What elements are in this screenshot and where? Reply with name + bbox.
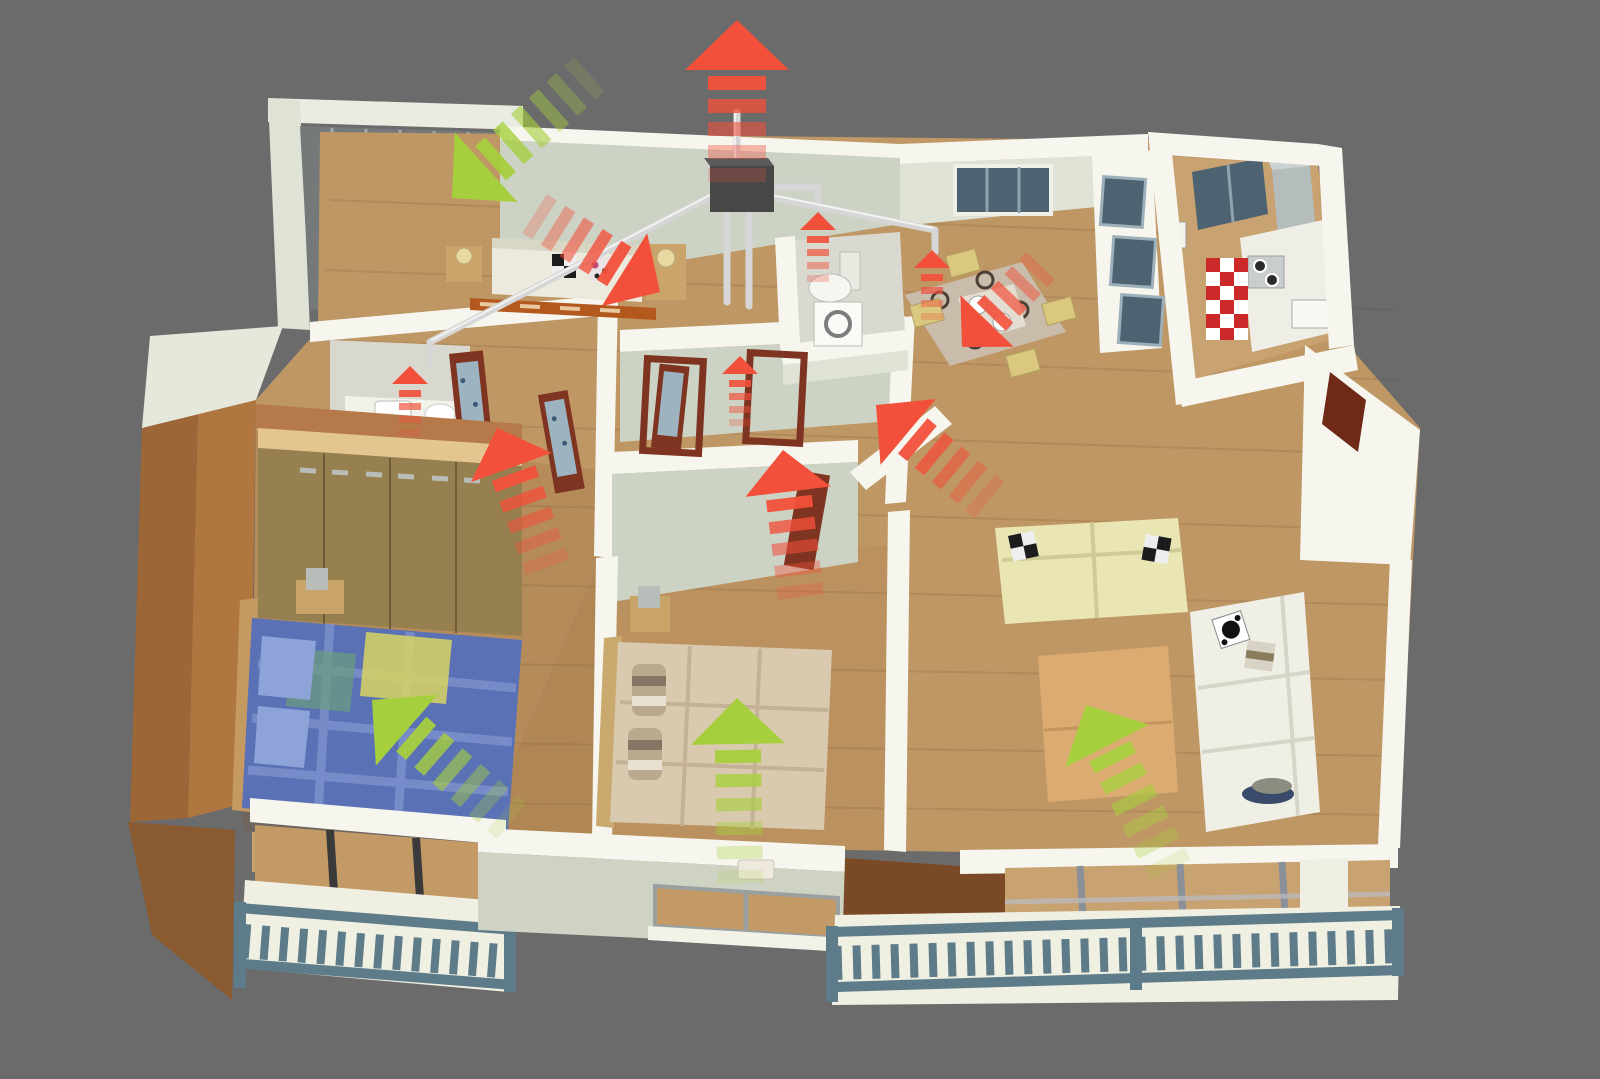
balcony-right-post-m [1130, 918, 1142, 990]
apartment-ventilation-render [0, 0, 1600, 1079]
lamp-left [456, 248, 472, 264]
decor-bowl-top [1252, 778, 1292, 794]
lamp-right [657, 249, 675, 267]
bedroom-center-east-wall [884, 510, 910, 852]
burner-2 [1266, 274, 1278, 286]
balcony-right-post-l [826, 926, 838, 1002]
balcony-left-post-r [504, 924, 516, 992]
washing-machine [814, 302, 862, 346]
lamp-center-top [638, 586, 660, 608]
sofa-cream-pillow-2 [1141, 534, 1171, 564]
heat-recovery-unit-top [704, 158, 774, 166]
sofa-white-pillow-2 [1244, 640, 1276, 672]
corridor-window [955, 166, 1051, 214]
balcony-left-balusters [242, 941, 514, 962]
bed-left-pillow-1 [258, 636, 316, 700]
sofa-cream-pillow-1 [1008, 531, 1039, 562]
corridor-east-windows [1092, 150, 1164, 353]
bed-center-pillow-2 [628, 728, 662, 780]
balcony-left-post-l [234, 902, 246, 988]
bed-left-pillow-2 [254, 706, 310, 768]
balcony-front-right [826, 906, 1404, 1005]
kitchen-red-tiles [1206, 258, 1248, 340]
balcony-right-post-r [1392, 908, 1404, 976]
burner-1 [1254, 260, 1266, 272]
nightstand-device-1 [306, 568, 328, 590]
bed-center-pillow-1 [632, 664, 666, 716]
bed-left-yellow-patch [360, 632, 452, 704]
